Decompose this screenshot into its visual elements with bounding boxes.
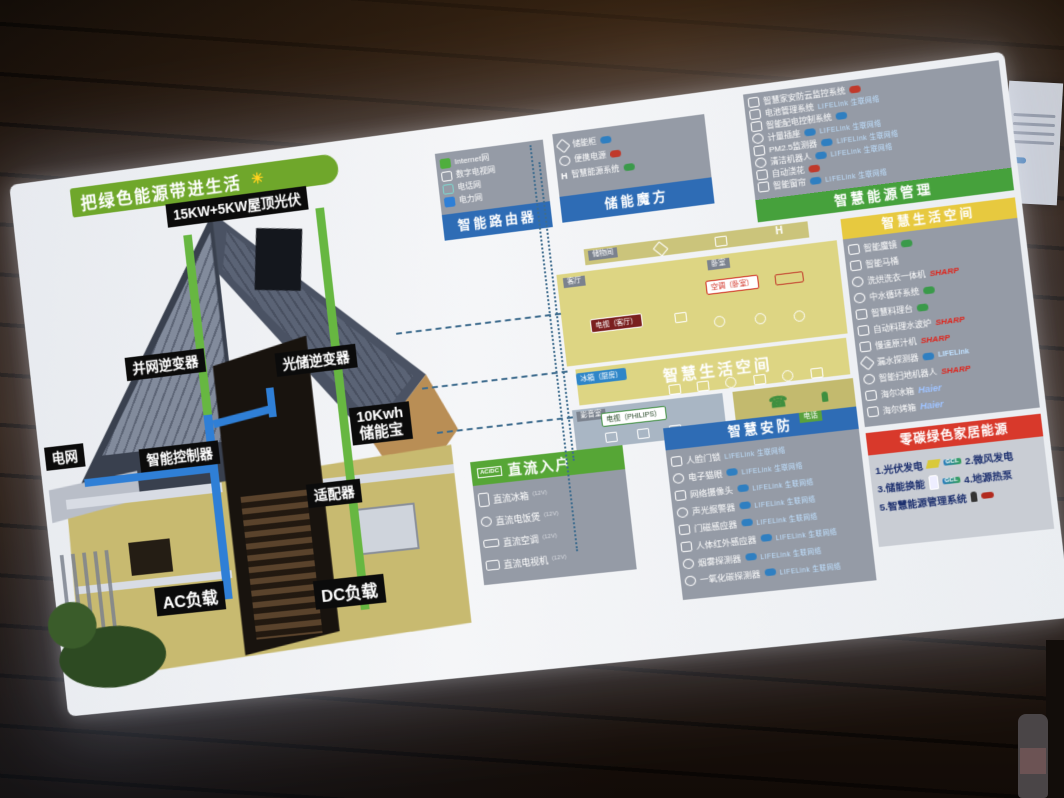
item-spec: (12V) [532, 490, 547, 498]
co-detector-icon [684, 575, 696, 586]
brand-chip [745, 553, 757, 561]
brand-chip [849, 85, 861, 94]
ip-camera-icon [674, 489, 686, 500]
item-label: 海尔冰箱 [880, 385, 914, 400]
dc-home-list: 直流冰箱 (12V) 直流电饭煲 (12V) 直流空调 (12V) [473, 469, 637, 585]
room-tag-bedroom: 卧室 [707, 258, 730, 271]
window [129, 539, 174, 576]
pm25-sensor-icon [753, 145, 765, 157]
item-label: 网络摄像头 [689, 483, 733, 500]
item-label: 人脸门锁 [685, 450, 721, 466]
brand-chip [726, 468, 738, 476]
haier-logo: Haier [919, 399, 944, 412]
item-spec: (12V) [552, 554, 567, 562]
zero-carbon-panel: 零碳绿色家居能源 1.光伏发电 GCL 2.微风发电 3.储能换能 GCL 4.… [866, 414, 1055, 547]
socket-icon [752, 133, 764, 145]
item-label: 海尔烤箱 [882, 401, 916, 416]
life-space-list: 智能魔镜 智能马桶 洗烘洗衣一体机 SHARP 中水循环系统 [843, 218, 1040, 427]
dark-corner [1046, 640, 1064, 798]
phone-icon: ☎ [768, 392, 789, 412]
brand-chip [623, 163, 635, 171]
brand-chip [737, 484, 749, 492]
item-spec: (12V) [544, 511, 559, 519]
brand-chip [923, 285, 935, 294]
pir-sensor-icon [680, 541, 692, 552]
microwave-oven-icon [857, 325, 870, 336]
monitor-icon [748, 97, 760, 109]
appliance-icon [781, 370, 794, 382]
internet-icon [439, 157, 451, 168]
badge-tv-living: 电视（客厅） [590, 313, 644, 333]
curtain-icon [757, 181, 769, 193]
brand-chip [916, 303, 928, 311]
sharp-logo: SHARP [929, 265, 959, 278]
brand-chip [808, 164, 820, 173]
tv-icon [637, 428, 650, 439]
dc-aircon-icon [483, 538, 500, 548]
item-label: 直流冰箱 [492, 488, 529, 505]
siren-icon [676, 506, 688, 517]
sharp-logo: SHARP [920, 332, 950, 345]
gcl-logo: GCL [943, 458, 961, 466]
washer-dryer-icon [851, 276, 864, 288]
water-bottle-label [1020, 748, 1046, 774]
note-text-line [1013, 122, 1055, 127]
toilet-icon [850, 260, 863, 272]
brand-chip [600, 136, 612, 144]
portable-power-icon [559, 155, 571, 166]
fridge-icon [865, 390, 878, 401]
item-label: 声光报警器 [691, 500, 735, 517]
life-space-panel: 智慧生活空间 智能魔镜 智能马桶 洗烘洗衣一体机 SHARP [840, 197, 1039, 427]
brand-chip [815, 151, 827, 160]
sharp-logo: SHARP [941, 363, 971, 376]
room-tag-living: 客厅 [563, 276, 586, 289]
tv-icon [605, 432, 618, 443]
item-label: 烟雾探测器 [697, 552, 741, 569]
red-vehicle-icon [981, 492, 994, 499]
acdc-badge: AC/DC [477, 466, 503, 479]
item-label: 电子猫眼 [687, 467, 723, 483]
brand-chip [835, 111, 847, 120]
brand-chip [739, 501, 751, 509]
water-recycle-icon [853, 292, 866, 304]
item-label: 储能柜 [572, 136, 597, 150]
lifelink-logo: LIFELink 生联网络 [779, 560, 842, 576]
person-icon [821, 391, 828, 402]
appliance-icon [810, 367, 823, 379]
sensor-icon [713, 315, 725, 327]
h-battery-icon: H [560, 170, 568, 181]
dc-home-panel: AC/DC 直流入户 直流冰箱 (12V) 直流电饭煲 (12V) [470, 445, 637, 585]
item-label: 电力网 [458, 192, 483, 206]
item-label: 直流空调 [502, 532, 539, 549]
item-label: 智能魔镜 [863, 239, 897, 254]
exhibition-photo: 把绿色能源带进生活 ☀ [0, 0, 1064, 798]
h-battery-icon: H [775, 225, 784, 237]
door-sensor-icon [678, 524, 690, 535]
item-label: 直流电饭煲 [495, 509, 541, 527]
battery-icon [749, 109, 761, 121]
storage-cube-panel: 储能柜 便携电源 H 智慧能源系统 储能魔方 [552, 114, 714, 223]
clock-icon [793, 310, 806, 322]
water-leak-sensor-icon [860, 356, 875, 371]
badge-fridge: 冰箱（厨房） [576, 368, 627, 386]
lightbox-board: 把绿色能源带进生活 ☀ [9, 51, 1064, 716]
security-panel: 智慧安防 人脸门锁 LIFELink 生联网络 电子猫眼 LIFELink 生联… [663, 406, 877, 600]
sun-icon: ☀ [250, 169, 267, 189]
brand-chip [922, 352, 934, 360]
room-tag-storage: 储物间 [588, 247, 618, 261]
dc-tv-icon [485, 560, 500, 571]
haier-logo: Haier [918, 382, 943, 395]
security-list: 人脸门锁 LIFELink 生联网络 电子猫眼 LIFELink 生联网络 网络… [666, 429, 877, 600]
item-label: 一氧化碳探测器 [699, 567, 761, 585]
item-label: 门磁感应器 [693, 518, 737, 535]
person-icon [970, 491, 977, 502]
tv-icon [674, 312, 687, 323]
battery-icon [714, 236, 727, 248]
item-label: 直流电视机 [503, 553, 549, 571]
item-label: 智慧能源系统 [571, 163, 620, 180]
tv-network-icon [441, 170, 453, 181]
cube-icon [653, 241, 669, 256]
lifelink-logo: LIFELink [938, 348, 970, 359]
note-text-line [1012, 131, 1054, 136]
brand-chip [610, 149, 622, 157]
badge-ac-bedroom: 空调（卧室） [705, 275, 759, 296]
label-storage: 10Kwh 储能宝 [348, 401, 413, 446]
label-grid: 电网 [44, 444, 86, 472]
smoke-detector-icon [682, 558, 694, 569]
dc-rice-cooker-icon [480, 516, 492, 527]
zero-carbon-list: 1.光伏发电 GCL 2.微风发电 3.储能换能 GCL 4.地源热泵 5.智慧… [868, 436, 1054, 547]
sharp-logo: SHARP [935, 314, 965, 327]
item-label: 智能马桶 [865, 255, 899, 270]
house-diagram: 15KW+5KW屋顶光伏 并网逆变器 光储逆变器 电网 智能控制器 10Kwh … [20, 174, 489, 697]
fan-icon [754, 312, 766, 324]
badge-tv-philips: 电视（PHILIPS） [601, 406, 667, 427]
brand-chip [821, 138, 833, 147]
mirror-icon [848, 244, 861, 256]
floorplan: 储物间 H 客厅 卧室 电视（客厅） 空调（卧室） 冰 [554, 218, 858, 450]
item-spec: (12V) [542, 533, 557, 541]
chimney [255, 228, 303, 291]
breaker-icon [750, 121, 762, 133]
oven-icon [867, 406, 880, 417]
face-lock-icon [670, 455, 682, 466]
peephole-icon [672, 472, 684, 483]
note-text-line [1013, 113, 1055, 118]
brand-chip [900, 239, 912, 248]
brand-chip [741, 518, 753, 526]
brand-chip [760, 534, 772, 542]
energy-mgmt-panel: 智慧家安防云监控系统 电池管理系统 LIFELink 生联网络 智能配电控制系统 [743, 60, 1014, 222]
dc-fridge-icon [478, 492, 490, 507]
brand-chip [764, 568, 776, 576]
cooking-counter-icon [855, 309, 868, 320]
robot-vacuum-icon [755, 157, 767, 169]
gcl-logo: GCL [942, 477, 960, 485]
storage-cabinet-icon [556, 138, 571, 153]
brand-chip [804, 127, 816, 136]
note-text-line [1012, 140, 1054, 145]
robot-vacuum-icon [863, 374, 876, 385]
watering-icon [756, 169, 768, 181]
ac-unit-icon [774, 271, 804, 286]
info-panels: Internet网 数字电视网 电话网 电力网 智能路由器 [433, 60, 1064, 671]
power-network-icon [444, 196, 456, 207]
pv-panel-icon [926, 459, 941, 469]
storage-bottle-icon [928, 475, 939, 490]
juicer-icon [859, 341, 872, 352]
telephone-network-icon [442, 183, 454, 194]
brand-chip [810, 176, 822, 185]
